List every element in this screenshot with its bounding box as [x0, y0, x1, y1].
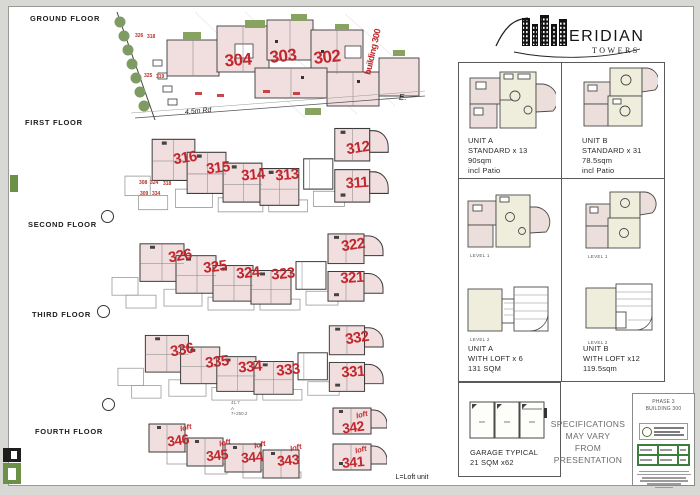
unit-number: 303	[269, 46, 298, 66]
unit-number: 341	[342, 454, 365, 470]
unit-number: 313	[275, 167, 300, 184]
building-label: BUILDING 300	[633, 406, 694, 412]
unit-number: 302	[313, 47, 342, 67]
caption-line: incl Patio	[468, 166, 528, 176]
second-floor-marker-circle	[101, 210, 114, 223]
panel-vertical-divider	[561, 62, 562, 382]
edge-green-mark	[10, 175, 18, 192]
small-unit-number: 318	[163, 182, 171, 187]
unit-number: 344	[241, 449, 264, 465]
unit-number: 316	[172, 149, 198, 167]
first-floor-plan: 316 315 314 313 312 311 308 324 318 309 …	[123, 122, 395, 214]
unit-number: 331	[341, 364, 366, 381]
panel-horizontal-divider	[458, 178, 665, 179]
east-marker: E.	[399, 94, 407, 102]
small-unit-number: 319	[156, 75, 164, 80]
unit-a-loft-level2-plan	[466, 285, 550, 335]
small-unit-number: 326	[135, 34, 143, 39]
caption-line: 21 SQM x62	[470, 458, 538, 468]
garage-caption: GARAGE TYPICAL 21 SQM x62	[470, 448, 538, 468]
revision-table	[637, 444, 690, 466]
unit-number: 304	[224, 51, 252, 70]
small-unit-number: 324	[150, 181, 158, 186]
unit-b-standard-caption: UNIT B STANDARD x 31 78.5sqm incl Patio	[582, 136, 642, 176]
fourth-floor-plan: loft loft loft loft loft loft 346 345 34…	[125, 398, 387, 480]
level-label: LEVEL 1	[588, 254, 608, 259]
caption-line: incl Patio	[582, 166, 642, 176]
disclaimer-line: PRESENTATION	[545, 454, 631, 466]
meridian-towers-logo: ERIDIAN TOWERS	[492, 10, 652, 58]
unit-a-standard-caption: UNIT A STANDARD x 13 90sqm incl Patio	[468, 136, 528, 176]
small-unit-number: 325	[144, 74, 152, 79]
unit-number: 315	[205, 159, 230, 177]
ground-floor-plan: 304 303 302 326 318 325 319 building 300…	[95, 10, 425, 122]
unit-number: 333	[276, 361, 301, 378]
architect-logo-icon	[639, 423, 688, 440]
disclaimer-line: SPECIFICATIONS	[545, 418, 631, 430]
small-unit-number: 308	[139, 181, 147, 186]
fourth-floor-marker-circle	[102, 398, 115, 411]
caption-line: 78.5sqm	[582, 156, 642, 166]
label-fourth-floor: FOURTH FLOOR	[35, 427, 103, 436]
unit-number: 334	[238, 359, 263, 376]
dimension-note: 41.7 A 7+250.2	[231, 400, 247, 417]
garage-plan	[468, 398, 548, 442]
caption-line: GARAGE TYPICAL	[470, 448, 538, 458]
unit-number: 311	[345, 175, 369, 192]
unit-b-loft-level2-plan	[584, 282, 656, 338]
level-label: LEVEL 2	[470, 337, 490, 342]
caption-line: WITH LOFT x12	[583, 354, 640, 364]
caption-line: UNIT A	[468, 136, 528, 146]
third-floor-plan: 336 335 334 333 332 331	[116, 320, 390, 402]
level-label: LEVEL 1	[470, 253, 490, 258]
caption-line: UNIT A	[468, 344, 523, 354]
unit-number: 314	[241, 167, 266, 184]
unit-number: 335	[204, 353, 229, 371]
small-unit-number: 309	[140, 192, 148, 197]
green-marker-icon	[3, 463, 21, 484]
caption-line: 119.5sqm	[583, 364, 640, 374]
unit-a-standard-plan	[468, 68, 556, 132]
caption-line: STANDARD x 31	[582, 146, 642, 156]
unit-number: 345	[205, 447, 228, 463]
dark-marker-icon	[3, 448, 21, 462]
unit-b-loft-caption: UNIT B WITH LOFT x12 119.5sqm	[583, 344, 640, 374]
small-unit-number: 318	[147, 35, 155, 40]
label-ground-floor: GROUND FLOOR	[30, 14, 100, 23]
towers-logo-icon: ERIDIAN TOWERS	[492, 10, 652, 58]
unit-number: 343	[277, 452, 300, 468]
loft-legend: L=Loft unit	[352, 474, 472, 481]
unit-number: 326	[167, 247, 193, 266]
unit-b-standard-plan	[582, 66, 658, 130]
unit-number: 325	[202, 258, 227, 276]
unit-number: 321	[340, 270, 365, 287]
title-block: PHASE 3 BUILDING 300	[632, 393, 695, 486]
specifications-disclaimer: SPECIFICATIONS MAY VARY FROM PRESENTATIO…	[545, 418, 631, 466]
caption-line: WITH LOFT x 6	[468, 354, 523, 364]
unit-number: 312	[345, 139, 371, 157]
unit-number: 324	[236, 265, 261, 282]
caption-line: STANDARD x 13	[468, 146, 528, 156]
label-third-floor: THIRD FLOOR	[32, 310, 91, 319]
small-unit-number: 334	[152, 192, 160, 197]
disclaimer-line: FROM	[545, 442, 631, 454]
ground-floor-drawing	[95, 10, 425, 122]
caption-line: UNIT B	[583, 344, 640, 354]
caption-line: 131 SQM	[468, 364, 523, 374]
unit-a-loft-caption: UNIT A WITH LOFT x 6 131 SQM	[468, 344, 523, 374]
plan-sheet-page: ERIDIAN TOWERS GROUND FLOOR FIRST FLOOR …	[0, 0, 700, 495]
unit-number: 332	[344, 329, 370, 347]
disclaimer-line: MAY VARY	[545, 430, 631, 442]
unit-number: 322	[340, 236, 366, 254]
label-second-floor: SECOND FLOOR	[28, 220, 97, 229]
unit-number: 342	[341, 419, 365, 436]
phase-label: PHASE 3	[633, 399, 694, 405]
third-floor-marker-circle	[97, 305, 110, 318]
unit-number: 323	[271, 266, 296, 283]
unit-number: 336	[169, 341, 195, 360]
unit-a-loft-level1-plan	[466, 193, 552, 251]
title-block-fineprint	[637, 469, 690, 490]
brand-name-text: ERIDIAN	[569, 28, 644, 45]
caption-line: UNIT B	[582, 136, 642, 146]
unit-b-loft-level1-plan	[584, 190, 658, 252]
label-first-floor: FIRST FLOOR	[25, 118, 83, 127]
caption-line: 90sqm	[468, 156, 528, 166]
second-floor-plan: 326 325 324 323 322 321	[110, 228, 390, 312]
unit-number: 346	[166, 432, 190, 449]
